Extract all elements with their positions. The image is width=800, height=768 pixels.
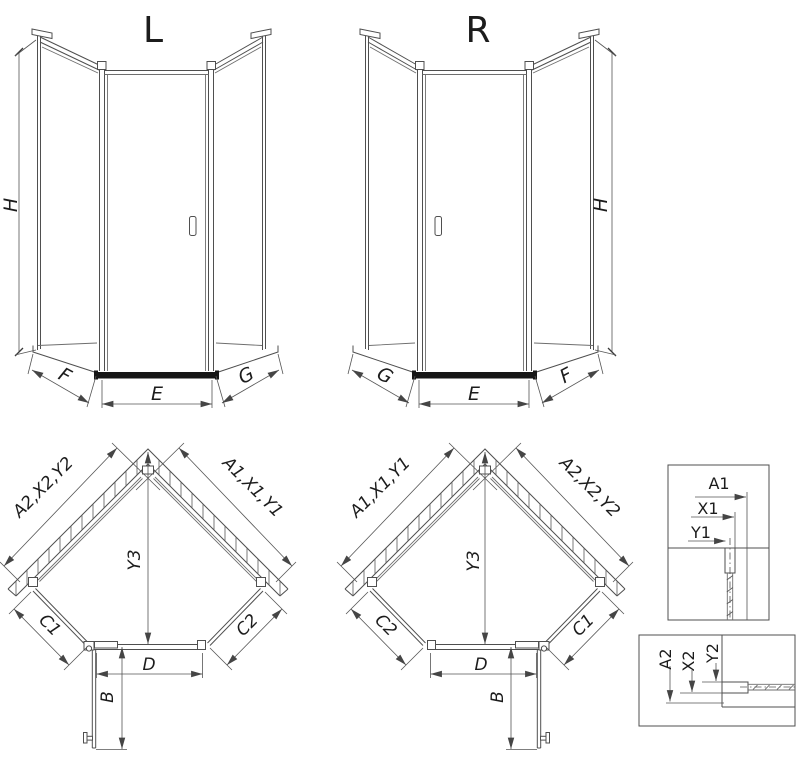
plan-left-c2-label: C2	[232, 610, 262, 640]
plan-right-door-width-label: D	[474, 655, 487, 675]
drawing-canvas: A1 X1 Y1 A2 X2 Y2 L H F E G R H G E F A2…	[0, 0, 800, 768]
plan-right-c2-label: C2	[370, 610, 400, 640]
elevation-right-height-label: H	[590, 198, 612, 212]
detail-top-dim-a1: A1	[708, 474, 729, 493]
plan-right-c1-label: C1	[568, 610, 598, 640]
detail-box-top: A1 X1 Y1	[668, 465, 769, 620]
detail-top-dim-y1: Y1	[690, 523, 711, 542]
detail-box-bottom: A2 X2 Y2	[639, 635, 795, 726]
plan-right-door-open-label: B	[488, 691, 508, 703]
detail-bottom-dim-y2: Y2	[703, 643, 722, 664]
elevation-left-drawing	[15, 29, 283, 408]
detail-top-dim-x1: X1	[697, 499, 718, 518]
plan-right-wall-right-label: A2,X2,Y2	[555, 452, 624, 521]
elevation-right-e-label: E	[468, 383, 480, 405]
plan-left-door-open-label: B	[98, 691, 118, 703]
elevation-left-e-label: E	[151, 383, 163, 405]
plan-left-c1-label: C1	[34, 610, 64, 640]
plan-right-depth-label: Y3	[464, 550, 484, 571]
plan-left-wall-left-label: A2,X2,Y2	[8, 453, 77, 522]
elevation-right-drawing	[348, 29, 616, 408]
plan-left-depth-label: Y3	[125, 549, 145, 570]
elevation-left-height-label: H	[0, 198, 22, 212]
shower-enclosure-technical-drawing: A1 X1 Y1 A2 X2 Y2 L H F E G R H G E F A2…	[0, 0, 800, 768]
plan-right-wall-left-label: A1,X1,Y1	[345, 453, 414, 522]
elevation-right-title: R	[465, 10, 490, 51]
elevation-left-title: L	[143, 10, 163, 51]
detail-bottom-dim-a2: A2	[656, 648, 675, 669]
elevation-left-g-label: G	[235, 363, 258, 389]
detail-bottom-dim-x2: X2	[679, 650, 698, 671]
plan-left-door-width-label: D	[142, 655, 155, 675]
plan-left-wall-right-label: A1,X1,Y1	[218, 452, 287, 521]
elevation-right-g-label: G	[373, 363, 396, 389]
